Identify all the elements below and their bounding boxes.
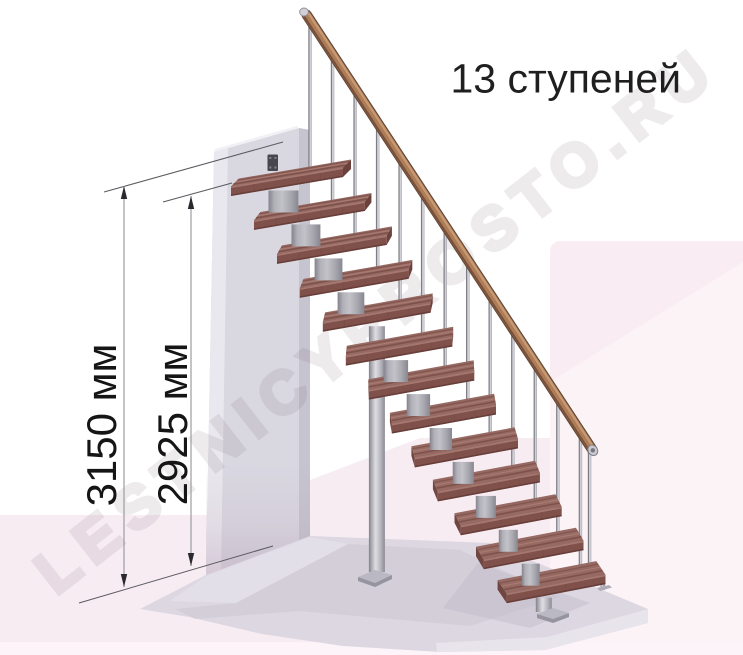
svg-text:2925 мм: 2925 мм [149, 343, 196, 506]
svg-text:13 ступеней: 13 ступеней [451, 56, 682, 102]
svg-text:3150 мм: 3150 мм [78, 344, 125, 507]
